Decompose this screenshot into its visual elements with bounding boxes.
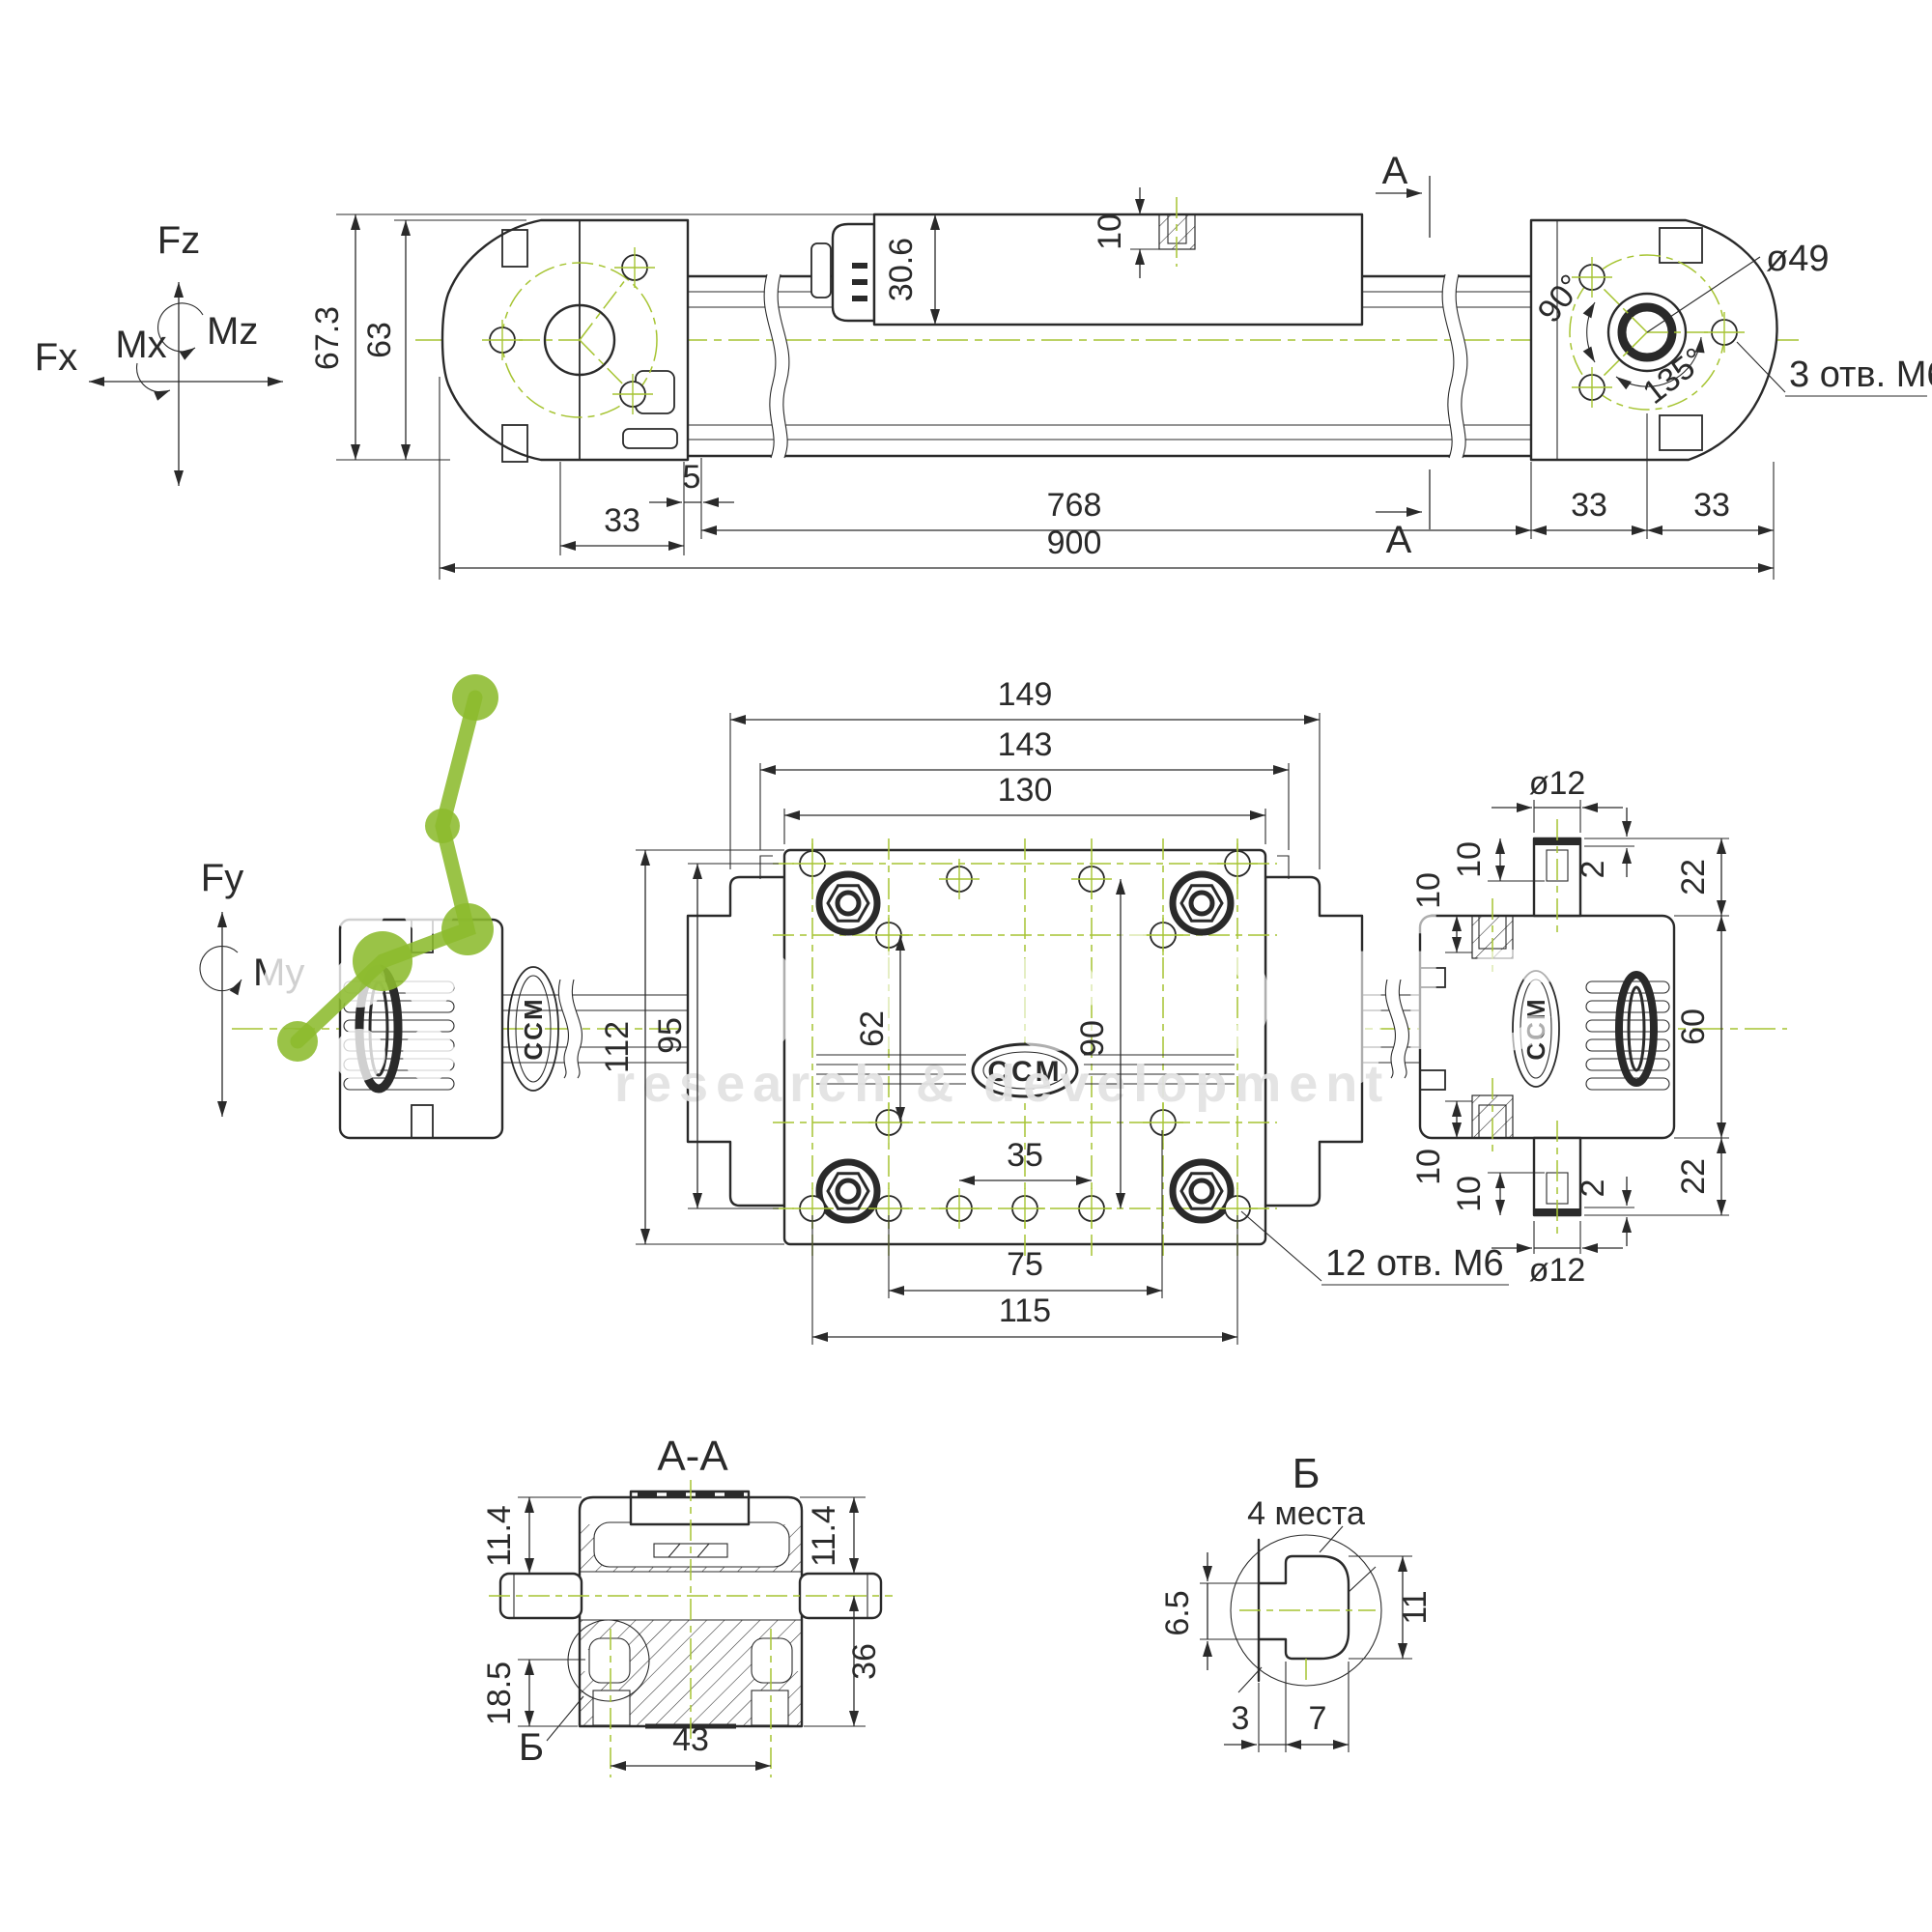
- dim-115: 115: [999, 1293, 1051, 1329]
- dim-33-r1: 33: [1571, 487, 1607, 524]
- technical-drawing: Fz Mz Mx Fx: [0, 0, 1932, 1932]
- dim-900: 900: [1047, 525, 1102, 561]
- dim-5: 5: [683, 459, 701, 496]
- dim-pin-step-top: 2: [1575, 861, 1611, 879]
- detail-b: Б 4 места 6.5 11 3 7: [1159, 1450, 1434, 1752]
- dim-33-r2: 33: [1693, 487, 1730, 524]
- dim-90: 90: [1074, 1020, 1111, 1057]
- ccm-logo-text: CCM: [519, 997, 548, 1060]
- mx-rotation-arc: [137, 363, 170, 392]
- detail-subtitle: 4 места: [1247, 1495, 1365, 1532]
- dim-67-3: 67.3: [309, 306, 346, 370]
- dim-36: 36: [846, 1643, 883, 1680]
- watermark-tagline: research & development: [614, 1055, 1390, 1113]
- holes-note-3m6: 3 отв. M6: [1789, 355, 1932, 395]
- dim-11: 11: [1397, 1590, 1434, 1624]
- dim-18-5: 18.5: [481, 1662, 518, 1725]
- dim-11-4-right: 11.4: [806, 1505, 842, 1567]
- dim-hole-depth-top: 10: [1410, 872, 1447, 909]
- my-rotation-arc: [200, 947, 241, 991]
- dim-7: 7: [1309, 1700, 1327, 1737]
- dim-130: 130: [998, 772, 1053, 809]
- axis-fz-label: Fz: [157, 219, 200, 262]
- force-axes-side: Fz Mz Mx Fx: [35, 219, 283, 486]
- dim-3: 3: [1232, 1700, 1250, 1737]
- dim-11-4-left: 11.4: [481, 1505, 518, 1567]
- detail-title: Б: [1293, 1450, 1321, 1497]
- section-letter-top: A: [1382, 150, 1408, 192]
- dim-33-left: 33: [604, 502, 640, 539]
- dim-112: 112: [599, 1021, 636, 1073]
- dim-35: 35: [1007, 1137, 1043, 1174]
- dim-75: 75: [1007, 1246, 1043, 1283]
- dim-60: 60: [1675, 1009, 1712, 1045]
- dim-62: 62: [854, 1010, 891, 1047]
- right-end-cap-side: 90° 135° ø49 3 отв. M6: [1531, 220, 1932, 460]
- axis-fx-label: Fx: [35, 336, 77, 379]
- dim-pin-len-bottom: 10: [1451, 1176, 1488, 1212]
- section-letter-bottom: A: [1386, 519, 1412, 561]
- axis-fy-label: Fy: [201, 857, 243, 899]
- dim-pin-dia-top: ø12: [1529, 765, 1586, 802]
- dim-hole-depth: 10: [1092, 213, 1128, 250]
- dim-768: 768: [1047, 487, 1102, 524]
- side-view: 30.6 10 90° 135° ø49 3 отв. M6 A: [309, 150, 1932, 580]
- dim-95: 95: [652, 1017, 689, 1054]
- dim-pin-len-top: 10: [1451, 841, 1488, 878]
- section-aa: A-A Б 11.4 11.4 18.5 36 43: [481, 1433, 893, 1777]
- axis-mz-label: Mz: [207, 310, 258, 353]
- holes-note-12m6: 12 отв. M6: [1325, 1243, 1504, 1284]
- dim-143: 143: [998, 726, 1053, 763]
- dim-6-5: 6.5: [1159, 1590, 1196, 1635]
- detail-ref-label: Б: [519, 1726, 544, 1769]
- section-title: A-A: [657, 1433, 728, 1480]
- dim-22-top: 22: [1675, 859, 1712, 895]
- dim-63: 63: [361, 322, 398, 358]
- dim-pin-step-bottom: 2: [1575, 1179, 1611, 1198]
- dim-149: 149: [998, 676, 1053, 713]
- axis-mx-label: Mx: [115, 324, 166, 366]
- left-end-cap-side: [442, 220, 688, 462]
- section-marks: A A: [1376, 150, 1430, 561]
- dim-pin-dia-bottom: ø12: [1529, 1252, 1586, 1289]
- carriage-side: 30.6 10: [811, 187, 1362, 325]
- dim-bolt-circle: ø49: [1766, 239, 1829, 279]
- dim-30-6: 30.6: [883, 238, 920, 301]
- dim-hole-depth-bottom: 10: [1410, 1149, 1447, 1185]
- dim-43: 43: [672, 1721, 709, 1758]
- drawing-canvas: Fz Mz Mx Fx: [0, 0, 1932, 1932]
- dim-22-bottom: 22: [1675, 1158, 1712, 1195]
